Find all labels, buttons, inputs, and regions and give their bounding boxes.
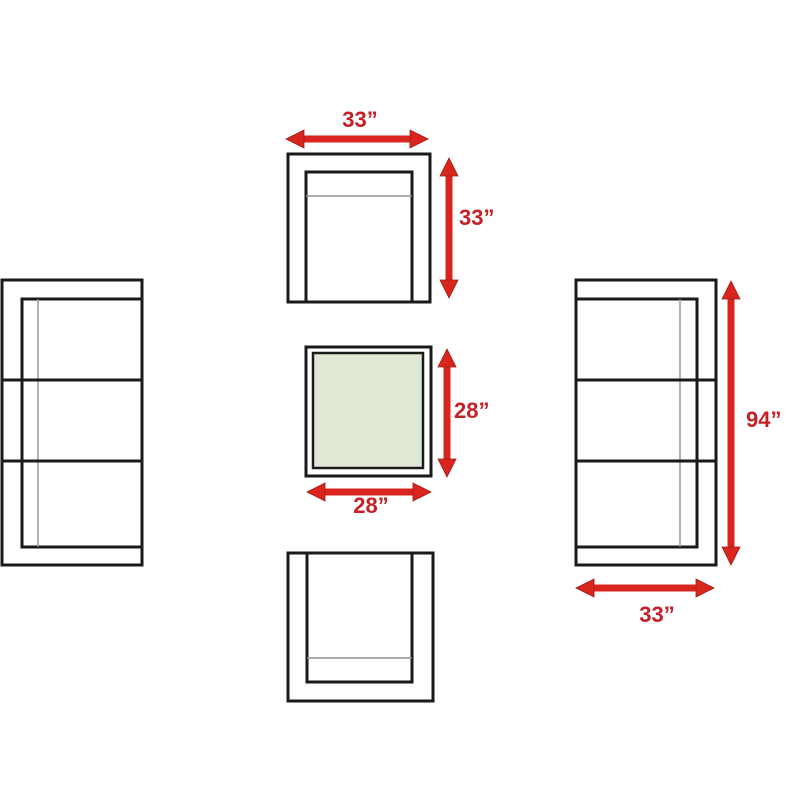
sofa-length-dimension-arrow: [722, 281, 740, 565]
furniture-dimensions-diagram: 33” 33” 28” 28” 94”: [0, 0, 800, 800]
arrow-up-head-icon: [722, 281, 740, 299]
arrow-down-head-icon: [722, 547, 740, 565]
furniture-dimensions-canvas: 33” 33” 28” 28” 94”: [0, 0, 800, 800]
sofa-right-frame: [576, 280, 716, 565]
table-depth-label: 28”: [454, 398, 489, 423]
arrow-left-head-icon: [576, 579, 594, 597]
sofa-depth-dimension-arrow: [576, 579, 714, 597]
table-width-label: 28”: [353, 493, 388, 518]
sofa-left: [2, 280, 142, 565]
arrow-up-head-icon: [440, 158, 458, 176]
arrow-down-head-icon: [440, 280, 458, 298]
armchair-bottom: [288, 553, 433, 701]
armchair-width-dimension-arrow: [286, 130, 428, 148]
coffee-table-top: [313, 353, 423, 468]
armchair-top-frame: [288, 154, 430, 302]
armchair-top: [288, 154, 430, 302]
sofa-depth-label: 33”: [639, 602, 674, 627]
arrow-right-head-icon: [413, 483, 431, 501]
sofa-length-label: 94”: [746, 407, 781, 432]
armchair-width-label: 33”: [342, 107, 377, 132]
arrow-left-head-icon: [307, 483, 325, 501]
arrow-right-head-icon: [410, 130, 428, 148]
arrow-left-head-icon: [286, 130, 304, 148]
sofa-right: [576, 280, 716, 565]
arrow-up-head-icon: [438, 349, 456, 367]
arrow-down-head-icon: [438, 459, 456, 477]
coffee-table: [306, 347, 431, 476]
arrow-right-head-icon: [696, 579, 714, 597]
armchair-depth-label: 33”: [459, 205, 494, 230]
armchair-depth-dimension-arrow: [440, 158, 458, 298]
